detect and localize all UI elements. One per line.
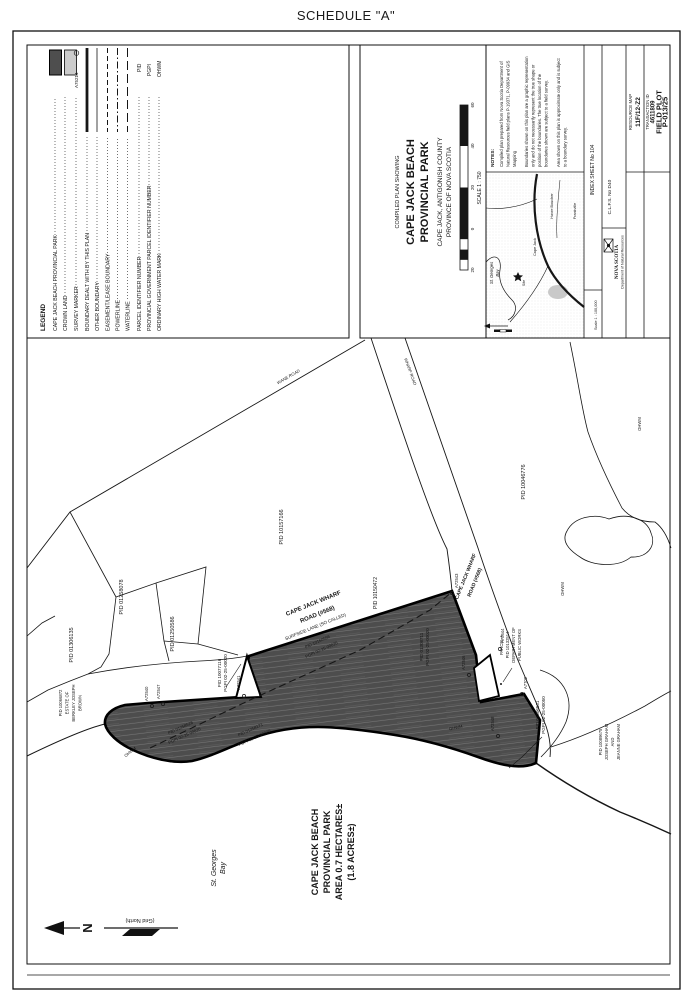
wharf-road-label: WHARF ROAD xyxy=(403,357,417,386)
pid-label: PID 10132514 xyxy=(505,631,510,658)
marker-label: A72543 xyxy=(454,573,459,588)
notes-line: position of the boundaries. The true loc… xyxy=(537,73,542,167)
marker-label: A72541 xyxy=(236,675,241,690)
legend: LEGEND CAPE JACK BEACH PROVINCIAL PARK C… xyxy=(40,48,163,331)
park-area-1: AREA 0.7 HECTARES± xyxy=(334,804,344,901)
grid-north-label: (Grid North) xyxy=(125,917,154,923)
notes-line: Mapping xyxy=(512,150,517,167)
legend-label-park: CAPE JACK BEACH PROVINCIAL PARK xyxy=(53,234,59,331)
notes-line: Area shown on this plan is approximate o… xyxy=(556,57,561,167)
legend-title: LEGEND xyxy=(40,304,47,331)
legend-label-pid: PARCEL IDENTIFIER NUMBER xyxy=(137,256,143,331)
plan-location-1: CAPE JACK, ANTIGONISH COUNTY xyxy=(437,137,444,247)
survey-plan-sheet: SCHEDULE "A" xyxy=(0,0,692,1002)
pond-outline xyxy=(565,516,653,564)
north-arrowhead xyxy=(44,921,64,935)
bay-label-2: Bay xyxy=(220,861,227,874)
legend-value-marker: A75214 xyxy=(74,72,79,88)
marker-label: A72540 xyxy=(144,686,149,701)
notes-line: Compiled plan prepared from Nova Scotia … xyxy=(499,60,504,167)
legend-label-ohwm: ORDINARY HIGH WATER MARK xyxy=(157,253,163,331)
pid-label: PID 01306135 xyxy=(69,627,75,662)
legend-label-powerline: POWERLINE xyxy=(116,299,122,331)
legend-label-waterline: WATERLINE xyxy=(126,301,132,331)
owner-label: JOSEPH GRAHAM xyxy=(604,723,609,760)
location-frankville-label: Frankville xyxy=(573,203,577,219)
notes-line: boundaries shown are subject to a field … xyxy=(544,80,549,167)
plan-subtitle: COMPILED PLAN SHOWING xyxy=(395,155,401,228)
legend-label-pgpi: PROVINCIAL GOVERNMENT PARCEL IDENTIFIER … xyxy=(147,185,153,331)
pid-label: PID 01308711 xyxy=(419,632,424,661)
shoreline-west xyxy=(27,724,105,756)
agency-name: NOVA SCOTIA xyxy=(615,245,620,280)
location-scale-label: Scale 1 : 100,000 xyxy=(594,300,598,330)
marker-label: A7702 xyxy=(523,676,528,689)
legend-value-ohwm: OHWM xyxy=(157,61,163,77)
notes-line: to a boundary survey. xyxy=(563,127,568,167)
index-sheet: INDEX SHEET No 104 xyxy=(590,144,596,195)
pid-label: PID 10157166 xyxy=(279,509,285,544)
wane-road-label: WANE ROAD xyxy=(276,368,301,385)
pgpi-label: PGPI 02-25-00020 xyxy=(223,654,228,692)
scale-label: SCALE 1 : 750 xyxy=(477,171,483,204)
pid-label: PID 10077116 xyxy=(217,658,222,687)
legend-label-plan-boundary: BOUNDARY DEALT WITH BY THIS PLAN xyxy=(85,233,91,331)
leader-dot xyxy=(500,683,502,685)
plan-title-2: PROVINCIAL PARK xyxy=(419,141,431,242)
boundary-line xyxy=(88,597,116,674)
owner-label: AND xyxy=(610,738,615,747)
owner-label: BERKLEY JOSEPH xyxy=(71,684,76,721)
park-name-block: CAPE JACK BEACH PROVINCIAL PARK AREA 0.7… xyxy=(310,804,356,901)
legend-label-easement: EASEMENT/LEASE BOUNDARY xyxy=(106,253,112,331)
scale-tick-1: 0 xyxy=(470,227,475,230)
shoreline-east xyxy=(536,763,671,834)
location-cape-jack-label: Cape Jack xyxy=(533,238,537,256)
scale-tick-2: 20 xyxy=(470,185,475,191)
boundary-line xyxy=(156,567,206,644)
park-name-2: PROVINCIAL PARK xyxy=(322,810,332,893)
owner-label: JEANNE GRAHAM xyxy=(616,723,621,760)
transaction-id-label: TRANSACTION ID xyxy=(645,94,650,129)
boundary-line xyxy=(27,616,55,636)
estate-parcel-label: PID 10066872 ESTATE OF BERKLEY JOSEPH BR… xyxy=(58,684,83,721)
location-map: Site St. Georges Bay Cape Jack Havre Bou… xyxy=(484,173,598,338)
marker-label: A72544 xyxy=(500,628,505,643)
agency-dept: Department of Natural Resources xyxy=(621,235,625,289)
pgpi-label: PGPI 02-25-00020 xyxy=(425,628,430,666)
boundary-line xyxy=(27,340,365,568)
clfs-number: C.L.F.S. No D40 xyxy=(607,179,613,214)
pid-label: PID 10089675 xyxy=(598,728,603,755)
location-bay-label-1: St. Georges xyxy=(489,261,494,284)
notes-line: only and do not necessarily represent th… xyxy=(531,64,536,167)
owner-label: DEPARTMENT OF xyxy=(511,627,516,663)
owner-label: PUBLIC WORKS xyxy=(517,629,522,661)
pid-label: PID 10066872 xyxy=(58,689,63,716)
park-area-2: (1.8 ACRES±) xyxy=(346,823,356,880)
owner-label: BROWN xyxy=(78,695,83,711)
park-name-1: CAPE JACK BEACH xyxy=(310,809,320,896)
pgpi-label: PGPI 02-25-00050 xyxy=(541,696,546,734)
legend-swatch-park xyxy=(50,50,62,75)
legend-label-other-boundary: OTHER BOUNDARY xyxy=(95,282,101,331)
pid-label: PID 10150472 xyxy=(373,577,379,609)
boundary-line xyxy=(70,512,116,597)
bay-label-1: St. Georges xyxy=(211,849,218,887)
notes-line: Boundaries shown on this plan are a grap… xyxy=(524,56,529,167)
park-parcel-label-east: PID 01308711 PGPI 02-25-00020 xyxy=(419,628,430,666)
legend-label-marker: SURVEY MARKER xyxy=(74,286,80,331)
location-gray-patch xyxy=(548,285,568,299)
notes-title: NOTES: xyxy=(490,148,496,167)
field-plot-value: P-013/25 xyxy=(661,97,670,127)
scale-tick-4: 60 xyxy=(470,102,475,108)
north-arrow-tail xyxy=(122,929,160,936)
site-label: Site xyxy=(522,280,526,286)
resource-map-label: RESOURCE MAP xyxy=(628,94,633,131)
graham-parcel-label: PID 10089675 JOSEPH GRAHAM AND JEANNE GR… xyxy=(598,723,621,760)
scale-bar xyxy=(460,105,468,270)
marker-label: A72547 xyxy=(156,684,161,699)
plan-drawing: LEGEND CAPE JACK BEACH PROVINCIAL PARK C… xyxy=(0,0,692,1002)
scale-tick-3: 40 xyxy=(470,143,475,149)
owner-label: ESTATE OF xyxy=(65,691,70,714)
location-havre-boucher-label: Havre Boucher xyxy=(550,193,554,219)
ohwm-label: OHWM xyxy=(560,582,565,596)
pid-label: PID 01258078 xyxy=(119,579,125,614)
ohwm-label: OHWM xyxy=(637,417,642,431)
location-bay-label-2: Bay xyxy=(495,268,500,276)
north-arrow: N (Grid North) xyxy=(44,917,178,936)
pid-label: PID 01250586 xyxy=(170,616,176,651)
marker-label: A72548 xyxy=(490,716,495,731)
notes-block: NOTES: Compiled plan prepared from Nova … xyxy=(490,56,568,167)
legend-value-pgpi: PGPI xyxy=(147,64,153,76)
marker-label: A72546 xyxy=(461,655,466,670)
pid-label: PID 01306531 xyxy=(535,700,540,729)
scale-tick-0: 20 xyxy=(470,267,475,273)
north-letter: N xyxy=(80,923,95,932)
legend-label-crown: CROWN LAND xyxy=(63,295,69,331)
nova-scotia-crest-icon xyxy=(604,239,613,252)
leader-line xyxy=(503,668,512,682)
plan-title-1: CAPE JACK BEACH xyxy=(405,139,417,245)
pid-label: PID 10046776 xyxy=(521,464,527,499)
notes-line: Natural Resources field plans P-19371, P… xyxy=(506,60,511,167)
resource-map-value: 11F/12-Z2 xyxy=(635,97,642,127)
legend-value-pid: PID xyxy=(137,63,143,72)
title-block: COMPILED PLAN SHOWING CAPE JACK BEACH PR… xyxy=(395,102,483,273)
plan-location-2: PROVINCE OF NOVA SCOTIA xyxy=(446,146,453,237)
